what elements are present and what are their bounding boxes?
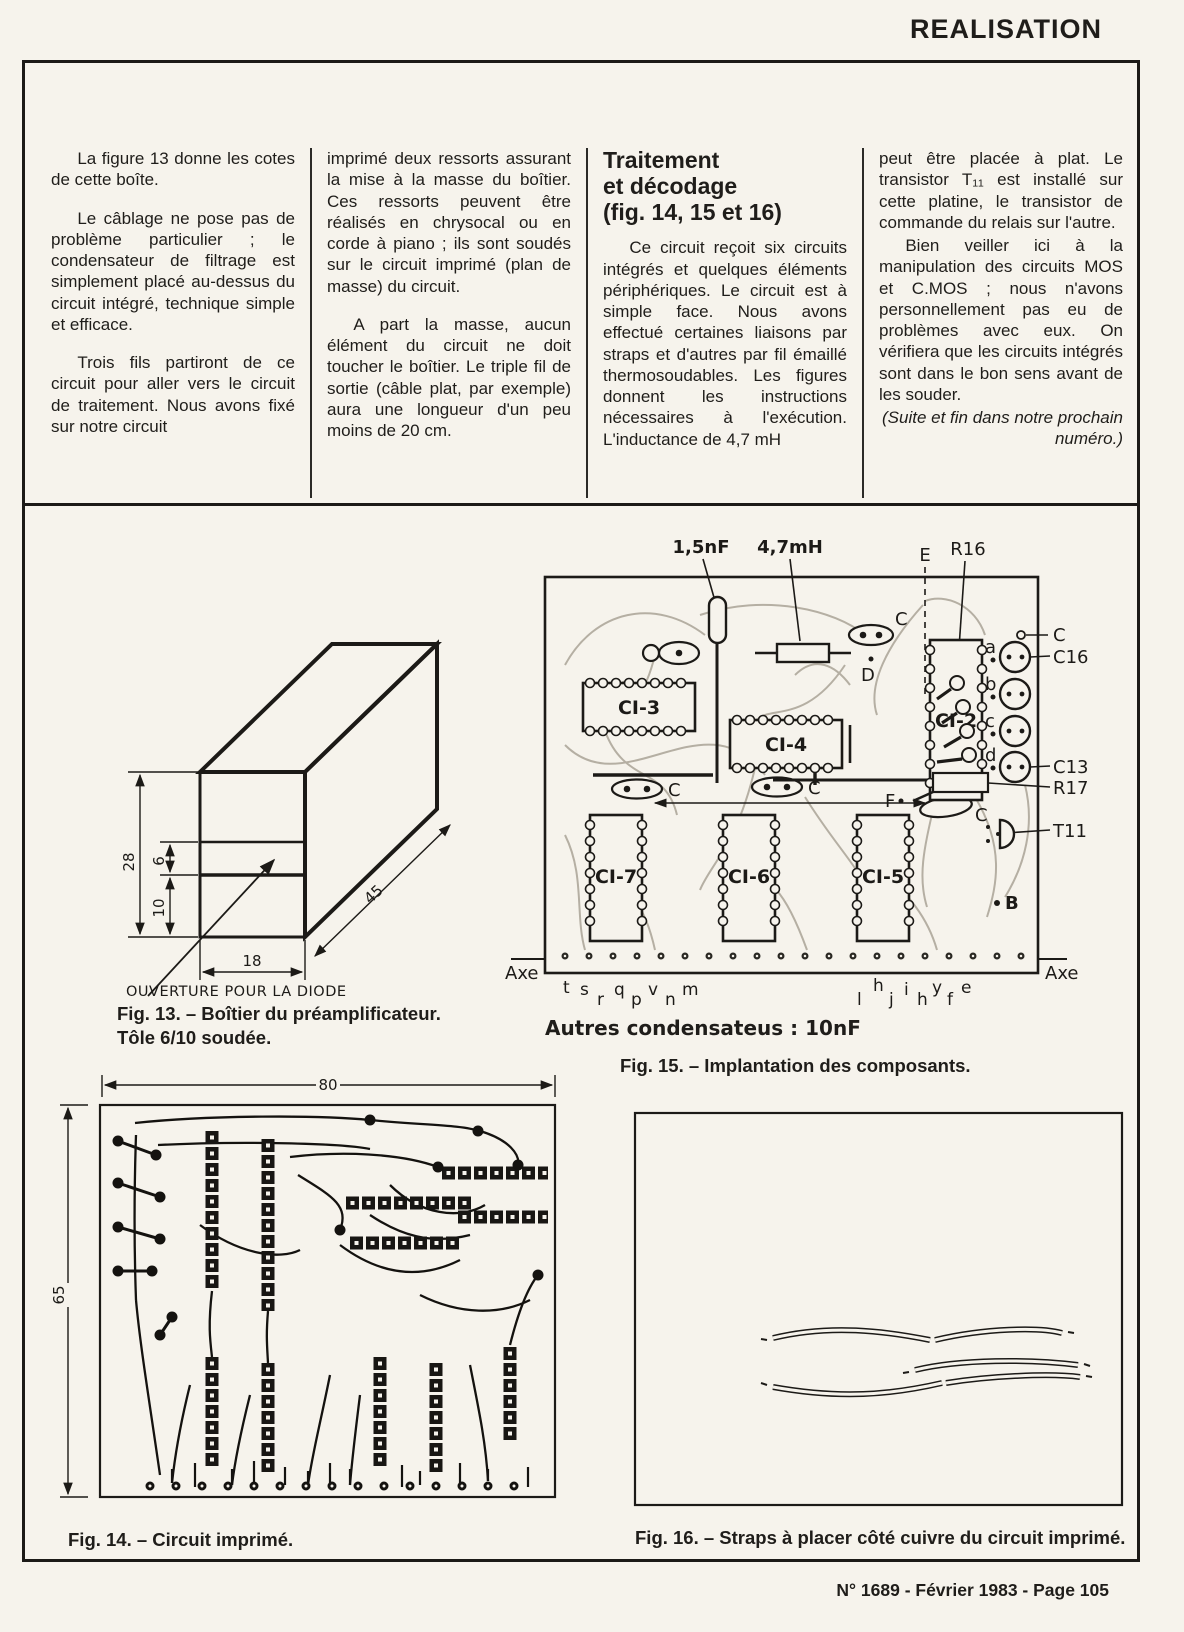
dim-10: 10 bbox=[150, 898, 168, 917]
label-f: F bbox=[885, 791, 895, 812]
text-column-3: Traitement et décodage (fig. 14, 15 et 1… bbox=[586, 148, 862, 498]
label-b: b bbox=[985, 674, 996, 695]
label-cap-c2: C bbox=[668, 780, 681, 801]
opening-label: OUVERTURE POUR LA DIODE bbox=[126, 984, 347, 1000]
transistor-cans bbox=[1000, 642, 1030, 782]
straps bbox=[761, 1329, 1092, 1394]
fig13-caption: Fig. 13. – Boîtier du préamplificateur. … bbox=[117, 1002, 497, 1050]
figure-14: 80 65 bbox=[40, 1045, 570, 1515]
svg-text:q: q bbox=[614, 980, 625, 1000]
paragraph: peut être placée à plat. Le transistor T… bbox=[879, 148, 1123, 233]
svg-text:y: y bbox=[932, 978, 942, 998]
left-pads bbox=[113, 1115, 544, 1341]
dim-65: 65 bbox=[50, 1285, 68, 1304]
svg-text:f: f bbox=[947, 990, 954, 1010]
svg-text:l: l bbox=[857, 990, 862, 1010]
page-footer: N° 1689 - Février 1983 - Page 105 bbox=[836, 1580, 1109, 1601]
text-column-2: imprimé deux ressorts assurant la mise à… bbox=[310, 148, 586, 498]
axis-marks bbox=[511, 959, 1067, 973]
dim-6: 6 bbox=[150, 856, 168, 866]
svg-text:m: m bbox=[682, 980, 699, 1000]
svg-text:h: h bbox=[873, 976, 884, 996]
label-r17: R17 bbox=[1053, 778, 1088, 799]
svg-text:r: r bbox=[597, 990, 604, 1010]
svg-text:v: v bbox=[648, 980, 658, 1000]
svg-text:e: e bbox=[961, 978, 971, 998]
ic-ci6: CI-6 bbox=[719, 815, 780, 941]
svg-text:CI-7: CI-7 bbox=[595, 866, 637, 888]
pad-chains bbox=[212, 1131, 548, 1475]
fig16-caption: Fig. 16. – Straps à placer côté cuivre d… bbox=[635, 1526, 1125, 1550]
label-axe-left: Axe bbox=[505, 963, 539, 984]
svg-text:t: t bbox=[563, 978, 570, 998]
label-e: E bbox=[919, 545, 930, 566]
fig15-caption: Fig. 15. – Implantation des composants. bbox=[620, 1054, 1165, 1078]
label-c16: C16 bbox=[1053, 647, 1088, 668]
pad-d bbox=[869, 657, 874, 662]
paragraph: Trois fils partiront de ce circuit pour … bbox=[51, 352, 295, 437]
figure-15: 1,5nF 4,7mH E R16 bbox=[505, 535, 1165, 1078]
ic-ci3: CI-3 bbox=[583, 679, 695, 736]
label-c-top: C bbox=[1053, 625, 1066, 646]
label-t11: T11 bbox=[1052, 821, 1087, 842]
paragraph: A part la masse, aucun élément du circui… bbox=[327, 314, 571, 442]
magazine-page: { "page": { "header": "REALISATION", "fo… bbox=[0, 0, 1184, 1632]
label-cap-c: C bbox=[895, 609, 908, 630]
paragraph: Bien veiller ici à la manipulation des c… bbox=[879, 235, 1123, 405]
svg-text:i: i bbox=[904, 980, 909, 1000]
svg-text:j: j bbox=[888, 990, 894, 1010]
inductor-4-7mh bbox=[755, 644, 851, 662]
pcb-outline bbox=[100, 1105, 555, 1497]
ic-ci7: CI-7 bbox=[586, 815, 647, 941]
svg-text:CI-5: CI-5 bbox=[862, 866, 904, 888]
svg-text:CI-6: CI-6 bbox=[728, 866, 770, 888]
preamp-box bbox=[200, 644, 437, 937]
fig15-note: Autres condensateus : 10nF bbox=[545, 1016, 1165, 1040]
ic-ci5: CI-5 bbox=[853, 815, 914, 941]
closing-note: (Suite et fin dans notre prochain numéro… bbox=[879, 407, 1123, 450]
opening-arrow bbox=[148, 860, 274, 996]
paragraph: imprimé deux ressorts assurant la mise à… bbox=[327, 148, 571, 297]
svg-text:CI-4: CI-4 bbox=[765, 734, 807, 756]
figure-16 bbox=[630, 1100, 1130, 1510]
paragraph: Ce circuit reçoit six circuits intégrés … bbox=[603, 237, 847, 450]
pad-b bbox=[994, 900, 1000, 906]
label-1-5nf: 1,5nF bbox=[673, 537, 730, 558]
pad-c-top bbox=[1017, 631, 1025, 639]
label-d2: d bbox=[985, 745, 996, 766]
label-a: a bbox=[985, 637, 996, 658]
fig15-drawing: 1,5nF 4,7mH E R16 bbox=[505, 535, 1165, 1010]
paragraph: Le câblage ne pose pas de problème parti… bbox=[51, 208, 295, 336]
svg-text:h: h bbox=[917, 990, 928, 1010]
dim-18: 18 bbox=[242, 952, 261, 970]
label-cap-c4: C bbox=[975, 805, 988, 826]
transistor-t11 bbox=[986, 820, 1014, 848]
fig16-drawing bbox=[630, 1100, 1130, 1510]
svg-text:s: s bbox=[580, 980, 589, 1000]
ic-ci4: CI-4 bbox=[730, 716, 850, 773]
article-columns: La figure 13 donne les cotes de cette bo… bbox=[36, 148, 1138, 498]
label-c: c bbox=[985, 711, 995, 732]
fig14-drawing: 80 65 bbox=[40, 1045, 570, 1515]
label-axe-right: Axe bbox=[1045, 963, 1079, 984]
dim-45: 45 bbox=[360, 881, 386, 907]
label-d: D bbox=[861, 665, 875, 686]
svg-text:n: n bbox=[665, 990, 676, 1010]
section-heading: Traitement et décodage (fig. 14, 15 et 1… bbox=[603, 148, 847, 225]
divider-rule bbox=[22, 503, 1140, 506]
dim-80: 80 bbox=[318, 1076, 337, 1094]
dimension-lines bbox=[128, 772, 450, 996]
text-column-4: peut être placée à plat. Le transistor T… bbox=[862, 148, 1138, 498]
dimension-lines bbox=[60, 1075, 555, 1497]
capacitor-1-5nf bbox=[709, 597, 726, 783]
svg-text:p: p bbox=[631, 990, 642, 1010]
label-r16: R16 bbox=[950, 539, 985, 560]
section-header: REALISATION bbox=[910, 14, 1102, 45]
connection-letters: t s r q p v n m l h j i h y f e bbox=[563, 976, 971, 1010]
straps-panel bbox=[635, 1113, 1122, 1505]
paragraph: La figure 13 donne les cotes de cette bo… bbox=[51, 148, 295, 191]
svg-text:CI-3: CI-3 bbox=[618, 697, 660, 719]
label-c13: C13 bbox=[1053, 757, 1088, 778]
dim-28: 28 bbox=[120, 852, 138, 871]
fig13-drawing: 28 6 10 18 45 OUVERTURE POUR LA DIODE bbox=[60, 580, 540, 1000]
pad-f bbox=[899, 799, 904, 804]
label-b-pad: B bbox=[1005, 893, 1019, 914]
label-4-7mh: 4,7mH bbox=[757, 537, 823, 558]
fig14-caption: Fig. 14. – Circuit imprimé. bbox=[68, 1528, 293, 1552]
figure-13: 28 6 10 18 45 OUVERTURE POUR LA DIODE Fi… bbox=[60, 580, 540, 1050]
text-column-1: La figure 13 donne les cotes de cette bo… bbox=[36, 148, 310, 498]
